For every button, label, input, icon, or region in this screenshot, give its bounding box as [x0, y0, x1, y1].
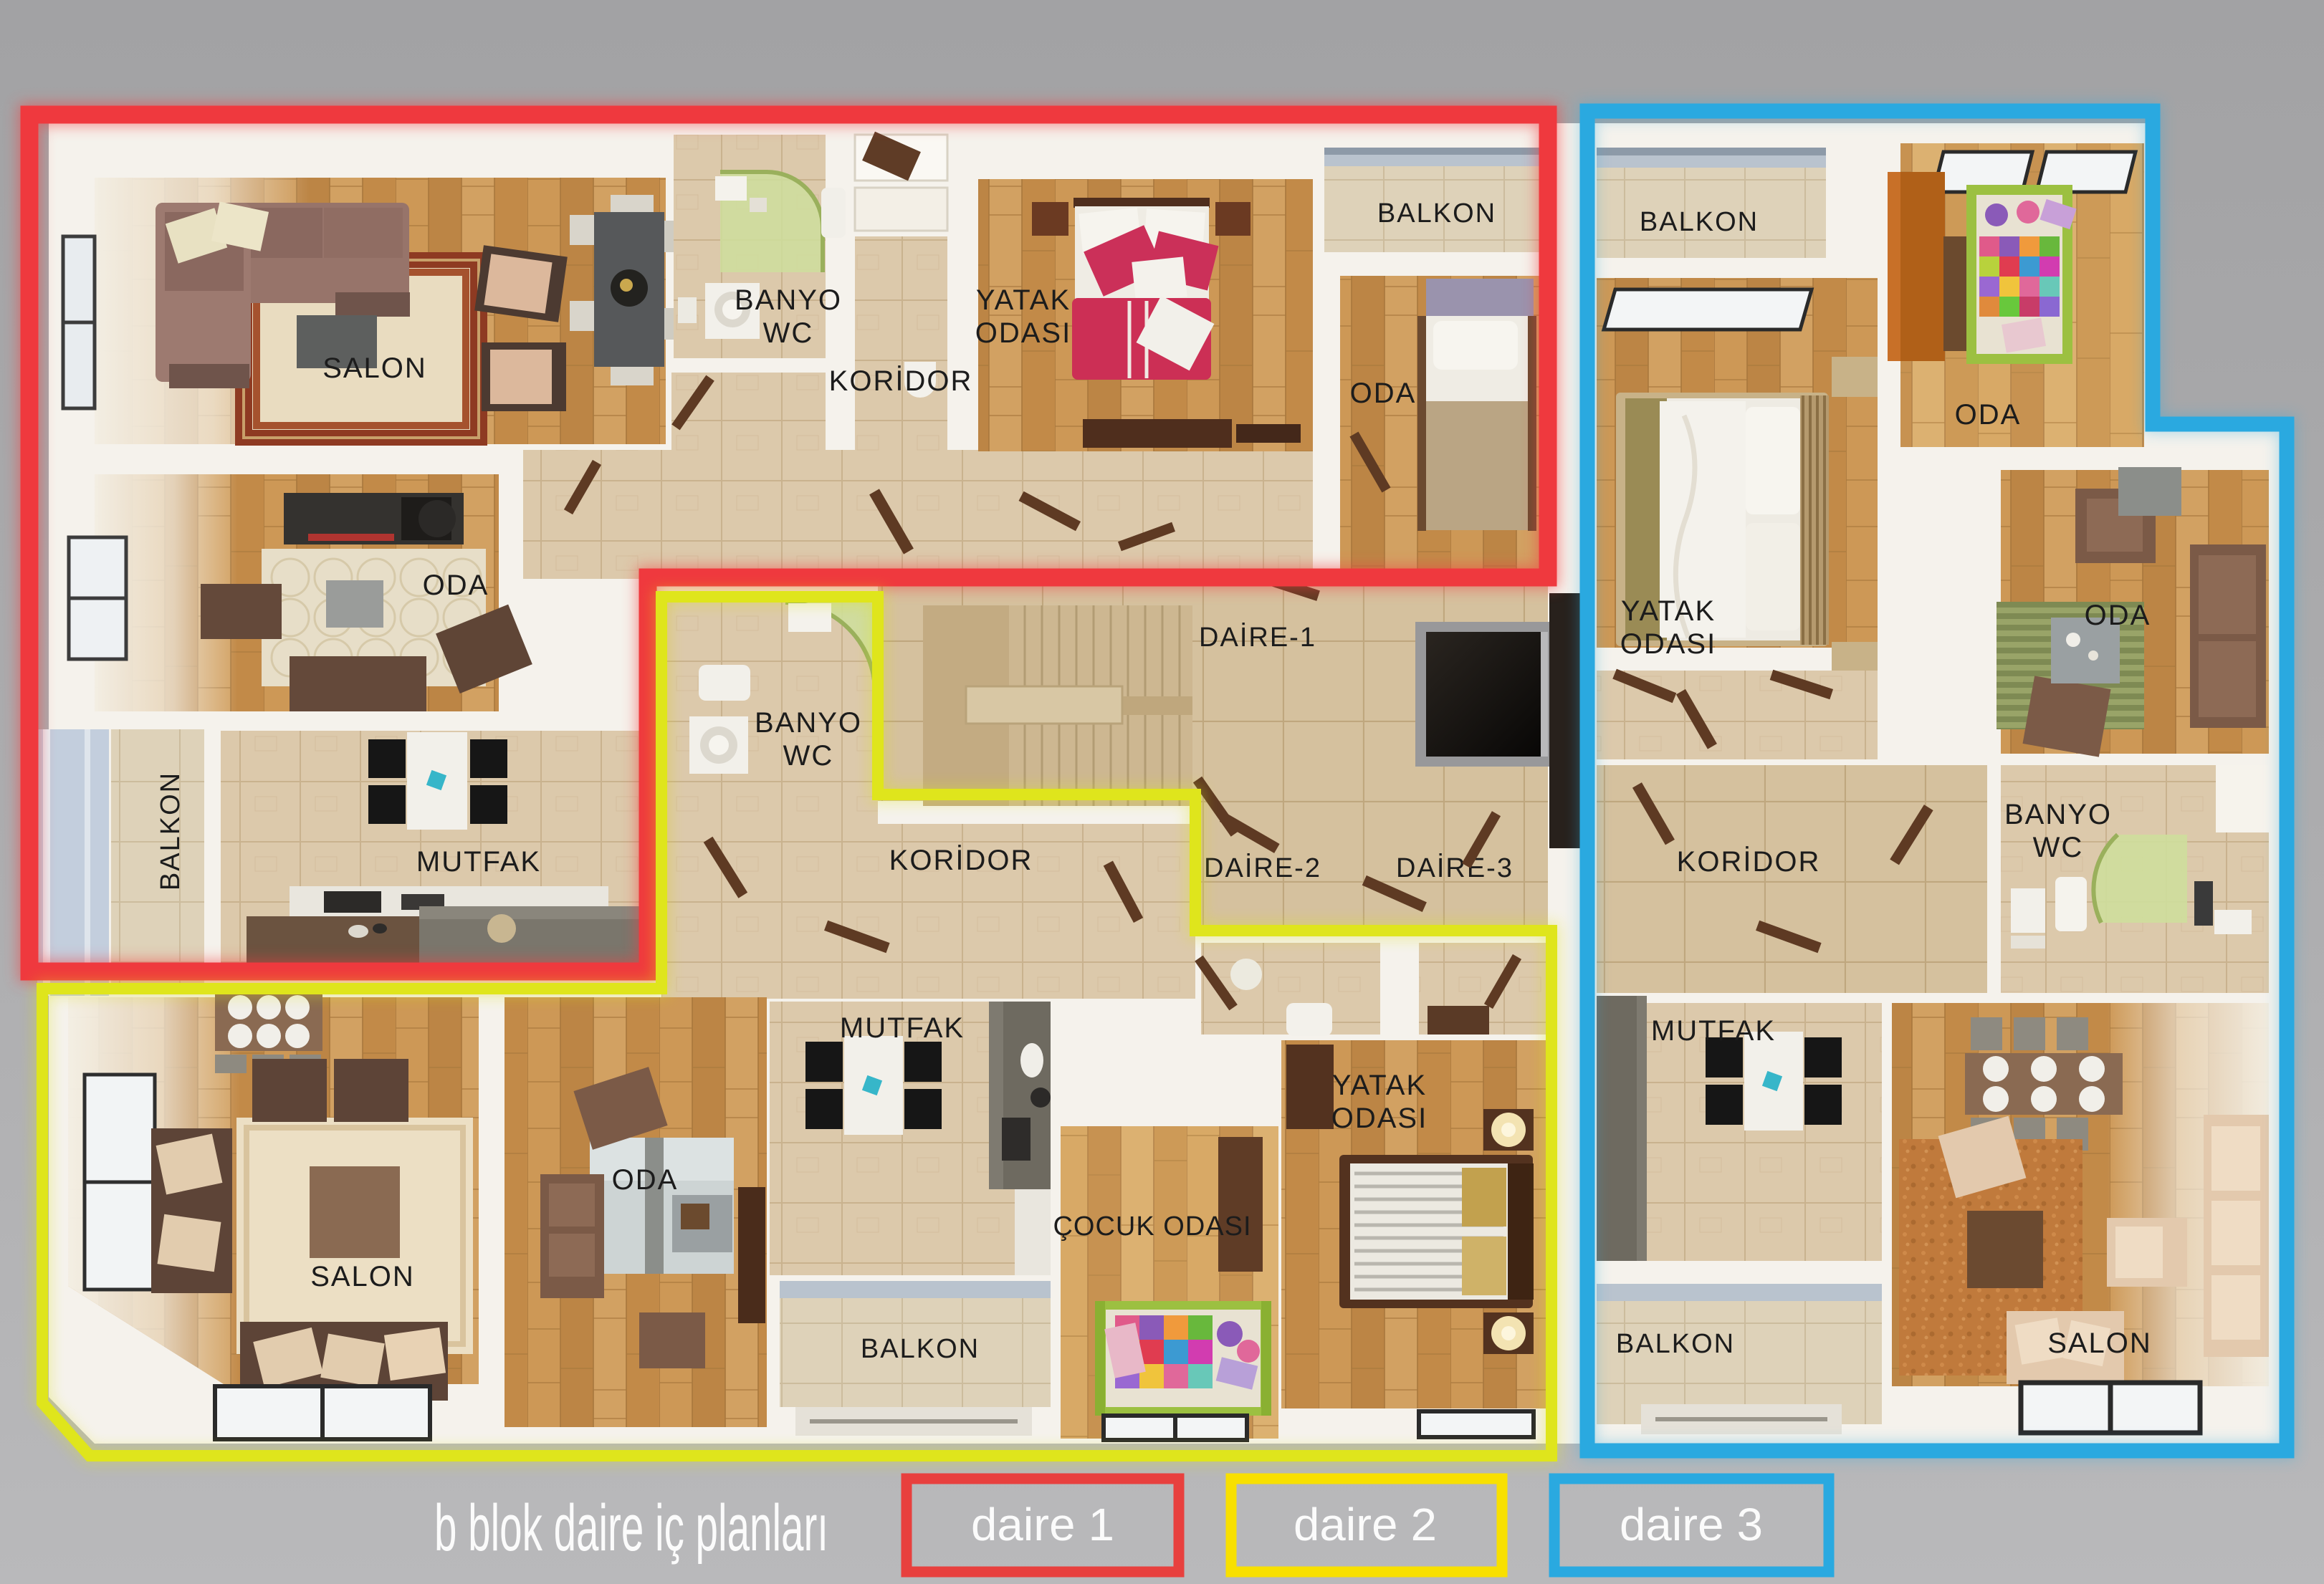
svg-text:ODA: ODA [2085, 600, 2151, 631]
svg-text:SALON: SALON [310, 1261, 415, 1292]
svg-text:WC: WC [2033, 832, 2084, 863]
svg-text:SALON: SALON [2047, 1328, 2152, 1359]
svg-text:ÇOCUK ODASI: ÇOCUK ODASI [1053, 1211, 1251, 1242]
svg-text:ODASI: ODASI [975, 317, 1071, 349]
svg-text:SALON: SALON [322, 352, 427, 384]
svg-text:ODASI: ODASI [1331, 1103, 1428, 1134]
svg-text:DAİRE-1: DAİRE-1 [1199, 622, 1316, 653]
svg-text:ODA: ODA [612, 1164, 679, 1196]
svg-text:KORİDOR: KORİDOR [889, 844, 1033, 876]
svg-text:ODASI: ODASI [1620, 628, 1716, 660]
svg-text:ODA: ODA [1955, 399, 2022, 431]
svg-text:DAİRE-3: DAİRE-3 [1396, 853, 1514, 883]
svg-text:BALKON: BALKON [156, 772, 186, 891]
svg-text:WC: WC [763, 317, 814, 349]
svg-text:DAİRE-2: DAİRE-2 [1204, 853, 1321, 883]
svg-text:daire 2: daire 2 [1293, 1499, 1437, 1550]
svg-text:ODA: ODA [423, 570, 489, 601]
svg-text:daire 1: daire 1 [971, 1499, 1114, 1550]
svg-text:BALKON: BALKON [861, 1334, 980, 1364]
svg-text:BANYO: BANYO [755, 707, 862, 739]
svg-text:daire 3: daire 3 [1620, 1499, 1763, 1550]
svg-text:WC: WC [783, 740, 834, 772]
svg-text:YATAK: YATAK [976, 284, 1071, 316]
svg-text:BALKON: BALKON [1640, 207, 1759, 237]
svg-text:BALKON: BALKON [1377, 198, 1496, 229]
svg-text:BANYO: BANYO [735, 284, 842, 316]
svg-text:YATAK: YATAK [1332, 1070, 1427, 1101]
svg-text:MUTFAK: MUTFAK [1651, 1015, 1776, 1047]
svg-text:YATAK: YATAK [1621, 595, 1716, 627]
svg-text:b blok daire iç planları: b blok daire iç planları [434, 1492, 828, 1565]
svg-text:KORİDOR: KORİDOR [829, 365, 973, 397]
svg-text:KORİDOR: KORİDOR [1677, 845, 1821, 878]
svg-text:BALKON: BALKON [1616, 1329, 1735, 1359]
svg-text:MUTFAK: MUTFAK [840, 1012, 965, 1044]
svg-text:ODA: ODA [1350, 378, 1417, 409]
svg-text:MUTFAK: MUTFAK [416, 846, 541, 878]
svg-text:BANYO: BANYO [2004, 799, 2112, 830]
